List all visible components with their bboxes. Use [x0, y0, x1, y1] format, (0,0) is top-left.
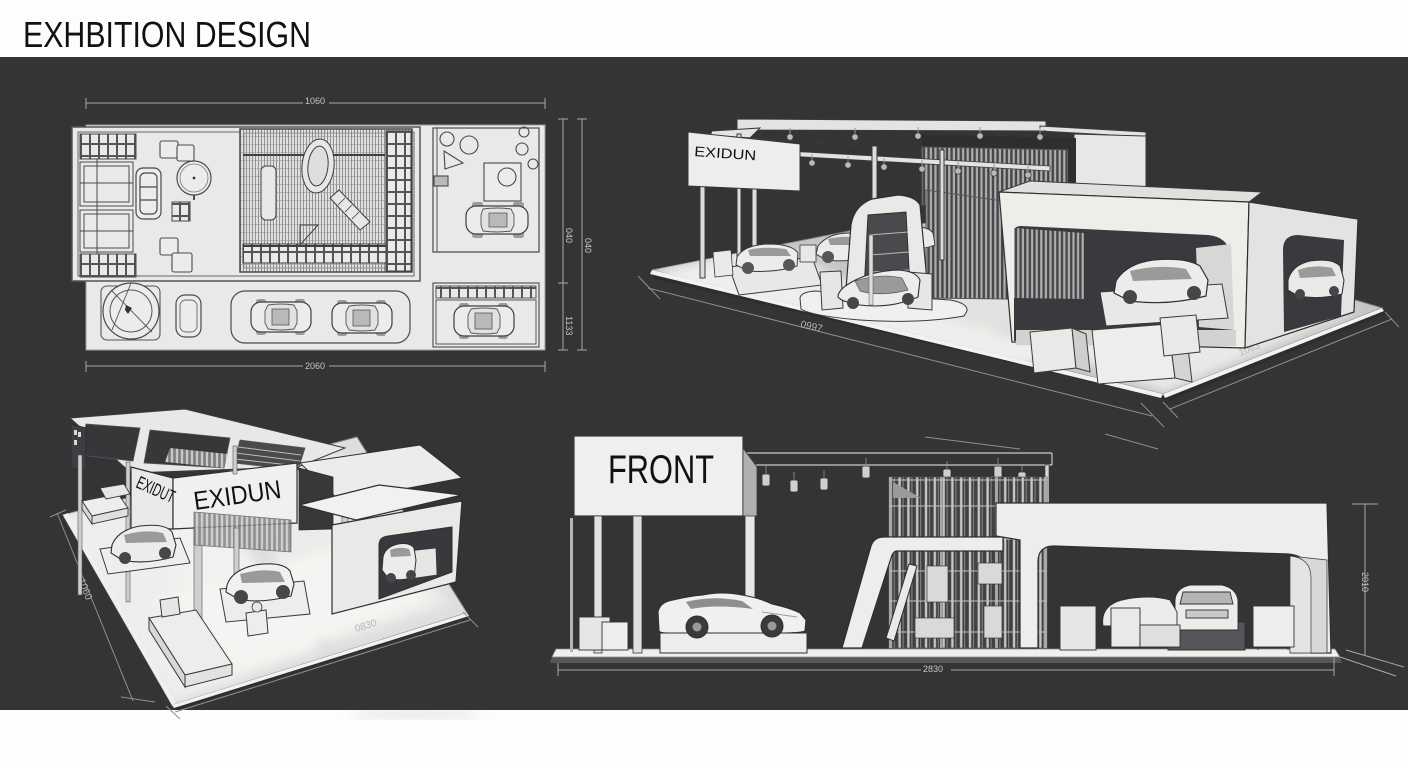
svg-text:1133: 1133 — [564, 316, 574, 335]
svg-text:EXHBITION DESIGN: EXHBITION DESIGN — [23, 14, 311, 55]
svg-text:FRONT: FRONT — [608, 448, 714, 492]
svg-text:040: 040 — [583, 238, 593, 253]
svg-text:040: 040 — [564, 228, 574, 243]
svg-text:2010: 2010 — [1360, 572, 1370, 592]
svg-text:1060: 1060 — [305, 96, 325, 106]
svg-text:2830: 2830 — [923, 664, 943, 674]
svg-text:2060: 2060 — [305, 361, 325, 371]
